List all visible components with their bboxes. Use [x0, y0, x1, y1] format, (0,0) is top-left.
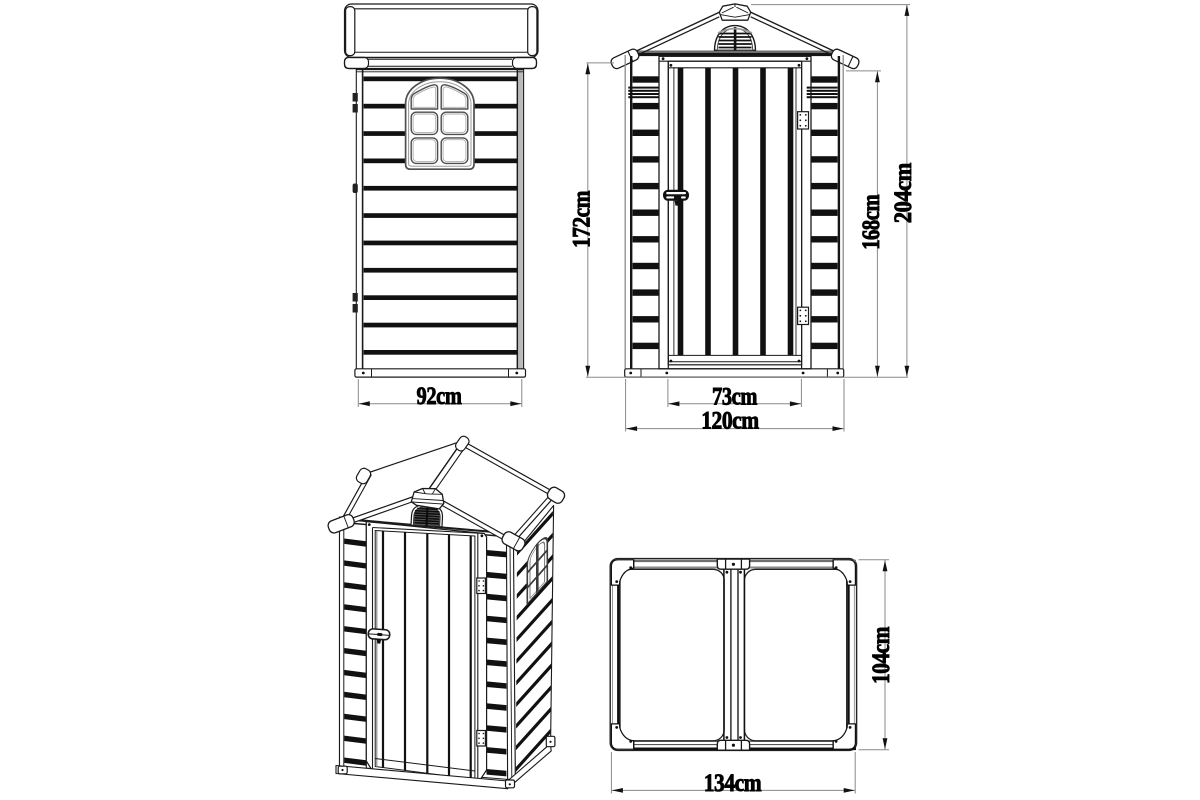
svg-text:134cm: 134cm: [704, 770, 762, 797]
svg-text:204cm: 204cm: [890, 162, 917, 223]
svg-text:73cm: 73cm: [712, 384, 758, 411]
svg-text:104cm: 104cm: [868, 626, 895, 684]
svg-text:168cm: 168cm: [858, 194, 885, 250]
svg-text:172cm: 172cm: [569, 190, 596, 248]
svg-text:120cm: 120cm: [701, 408, 759, 435]
svg-text:92cm: 92cm: [417, 383, 463, 410]
